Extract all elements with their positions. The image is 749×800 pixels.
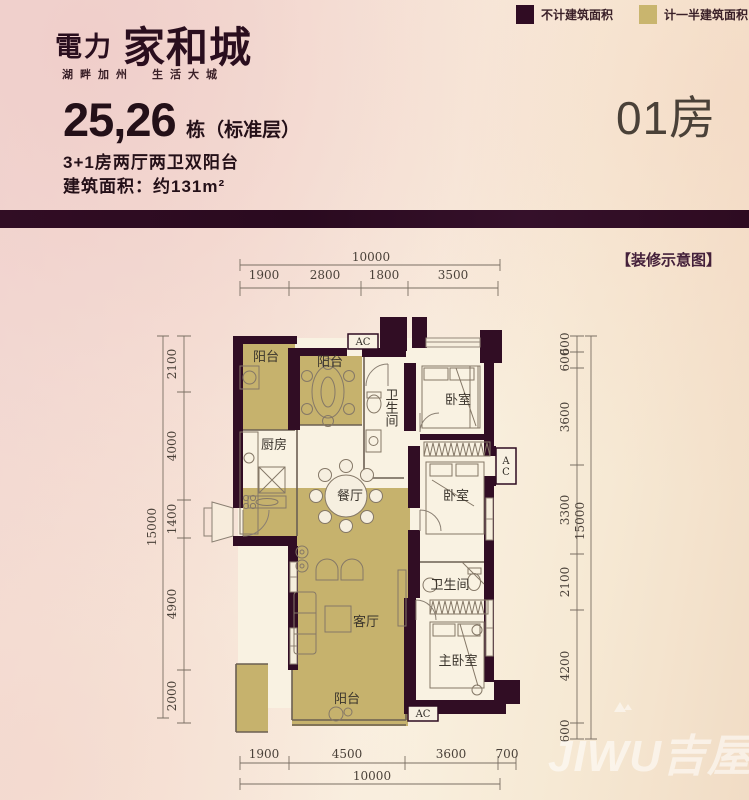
dim-right-total: 15000	[573, 502, 587, 540]
dim-bottom-seg: 700	[496, 747, 519, 761]
dim-left-seg: 2100	[165, 349, 179, 380]
zone-side-strip	[236, 664, 268, 732]
entry-vestibule	[212, 502, 233, 542]
room-label-bedroom-1: 卧室	[445, 392, 471, 408]
dim-left-seg: 1400	[165, 504, 179, 535]
dim-bottom-seg: 3600	[436, 747, 467, 761]
room-label-bedroom-2: 卧室	[443, 488, 469, 504]
room-label-balcony-n: 阳台	[317, 355, 343, 370]
dim-top-seg: 1800	[369, 268, 400, 282]
watermark: JIWU吉屋	[548, 720, 749, 784]
room-label-dining: 餐厅	[337, 488, 363, 504]
floor-plan: 10000 1900 2800 1800 3500 2100 4000 1400…	[0, 0, 749, 800]
dimension-left: 2100 4000 1400 4900 2000 15000	[145, 336, 191, 723]
dimension-bottom: 1900 4500 3600 700 10000	[240, 747, 518, 790]
dimension-right: 600 600 3600 3300 2100 4200 600 15000	[558, 333, 597, 743]
ac-label-bottom: AC	[415, 709, 431, 720]
dim-bottom-total: 10000	[353, 769, 391, 783]
room-label-balcony-nw: 阳台	[253, 350, 279, 365]
page: 電力家和城 湖畔加州 生活大城 不计建筑面积 计一半建筑面积 25,26 栋（标…	[0, 0, 749, 800]
room-label-balcony-s: 阳台	[334, 692, 360, 707]
dim-bottom-seg: 4500	[332, 747, 363, 761]
room-label-bathroom-1: 卫生间	[383, 388, 399, 427]
room-label-living: 客厅	[353, 614, 379, 630]
room-label-bathroom-2: 卫生间	[430, 578, 469, 593]
dim-top-total: 10000	[352, 250, 390, 264]
dim-top-seg: 2800	[310, 268, 341, 282]
dim-right-seg: 4200	[558, 651, 572, 682]
dim-top-seg: 3500	[438, 268, 469, 282]
room-label-master: 主卧室	[438, 653, 477, 669]
dim-right-seg: 2100	[558, 567, 572, 598]
dim-bottom-seg: 1900	[249, 747, 280, 761]
ac-label-top: AC	[355, 337, 371, 348]
dim-left-total: 15000	[145, 508, 159, 546]
dim-right-seg: 600	[558, 349, 572, 372]
dim-left-seg: 2000	[165, 681, 179, 712]
dim-right-seg: 3300	[558, 495, 572, 526]
dim-top-seg: 1900	[249, 268, 280, 282]
dim-left-seg: 4000	[165, 431, 179, 462]
watermark-mark	[614, 702, 632, 712]
dim-left-seg: 4900	[165, 589, 179, 620]
dimension-top: 10000 1900 2800 1800 3500	[240, 250, 500, 296]
room-label-kitchen: 厨房	[261, 437, 287, 453]
ac-label-right: AC	[501, 456, 512, 478]
dim-right-seg: 3600	[558, 402, 572, 433]
